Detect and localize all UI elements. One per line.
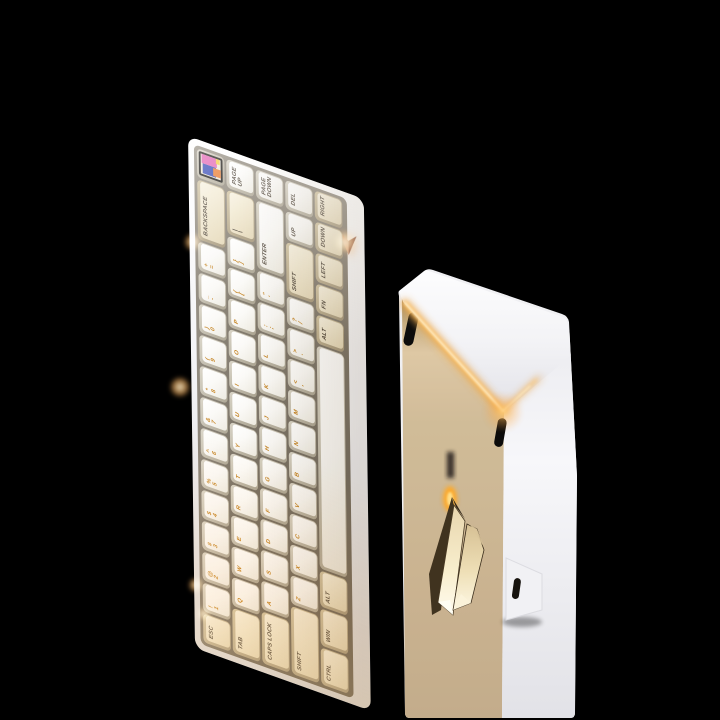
backlight-glow	[180, 229, 206, 255]
keyboard-front-view: ESC!1@2#3$4%5^6&7*8(9)0_-+=BACKSPACETABQ…	[188, 136, 371, 711]
mirror-reflection	[447, 452, 454, 478]
key-legend: SHIFT	[294, 608, 319, 680]
key-legend: CAPS LOCK	[264, 613, 288, 670]
keyboard-back-view	[386, 258, 620, 720]
product-render-scene: ESC!1@2#3$4%5^6&7*8(9)0_-+=BACKSPACETABQ…	[0, 0, 720, 720]
backlight-glow	[185, 574, 207, 596]
key-capslock: CAPS LOCK	[262, 611, 290, 673]
led-vertex-bloom	[483, 392, 523, 432]
key-space	[317, 345, 348, 578]
backlight-glow	[194, 604, 214, 624]
key-legend: |\	[229, 192, 253, 241]
key-rshift: SHIFT	[286, 242, 314, 304]
pixel-art-badge	[199, 151, 223, 184]
key-legend: WIN	[323, 611, 347, 652]
side-logo-glow	[329, 226, 361, 258]
key-legend	[320, 347, 347, 574]
key-legend: TAB	[235, 610, 259, 659]
key-legend: ENTER	[259, 202, 284, 274]
key-legend: CTRL	[324, 649, 348, 690]
key-lshift: SHIFT	[291, 606, 319, 684]
key-legend: ALT	[323, 572, 347, 613]
backlight-glow	[165, 372, 195, 402]
key-enter: ENTER	[256, 200, 284, 278]
key-legend: SHIFT	[289, 244, 313, 301]
